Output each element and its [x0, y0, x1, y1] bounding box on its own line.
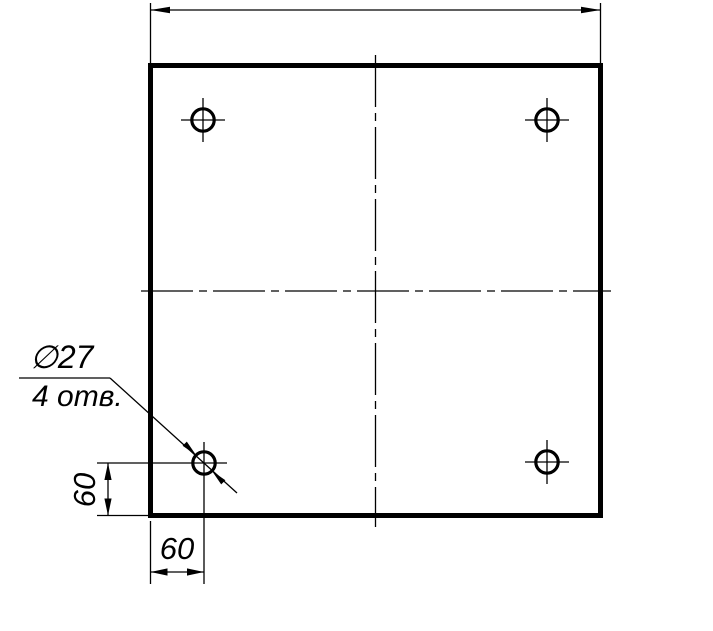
arrowhead-left: [151, 568, 168, 575]
dimension-value-bottom: 60: [160, 531, 194, 566]
drawing-svg: 60 60 ∅27 4 отв.: [0, 0, 713, 631]
hole-top-right: [525, 98, 569, 142]
hole-diameter-label: ∅27: [30, 339, 95, 375]
hole-top-left: [181, 98, 225, 142]
arrowhead-down: [104, 499, 111, 516]
leader-arrowhead-upper: [183, 442, 196, 455]
arrowhead-right: [581, 7, 601, 13]
hole-bottom-right: [525, 440, 569, 484]
technical-drawing: 60 60 ∅27 4 отв.: [0, 0, 713, 631]
hole-count-label: 4 отв.: [32, 380, 123, 413]
arrowhead-up: [104, 463, 111, 480]
dimension-top: [151, 3, 601, 63]
dimension-bottom-60: 60: [151, 521, 205, 584]
leader-arrowhead-lower: [212, 471, 225, 484]
arrowhead-right: [187, 568, 204, 575]
dimension-value-left: 60: [67, 473, 102, 507]
dimension-left-60: 60: [67, 463, 150, 516]
arrowhead-left: [151, 7, 171, 13]
